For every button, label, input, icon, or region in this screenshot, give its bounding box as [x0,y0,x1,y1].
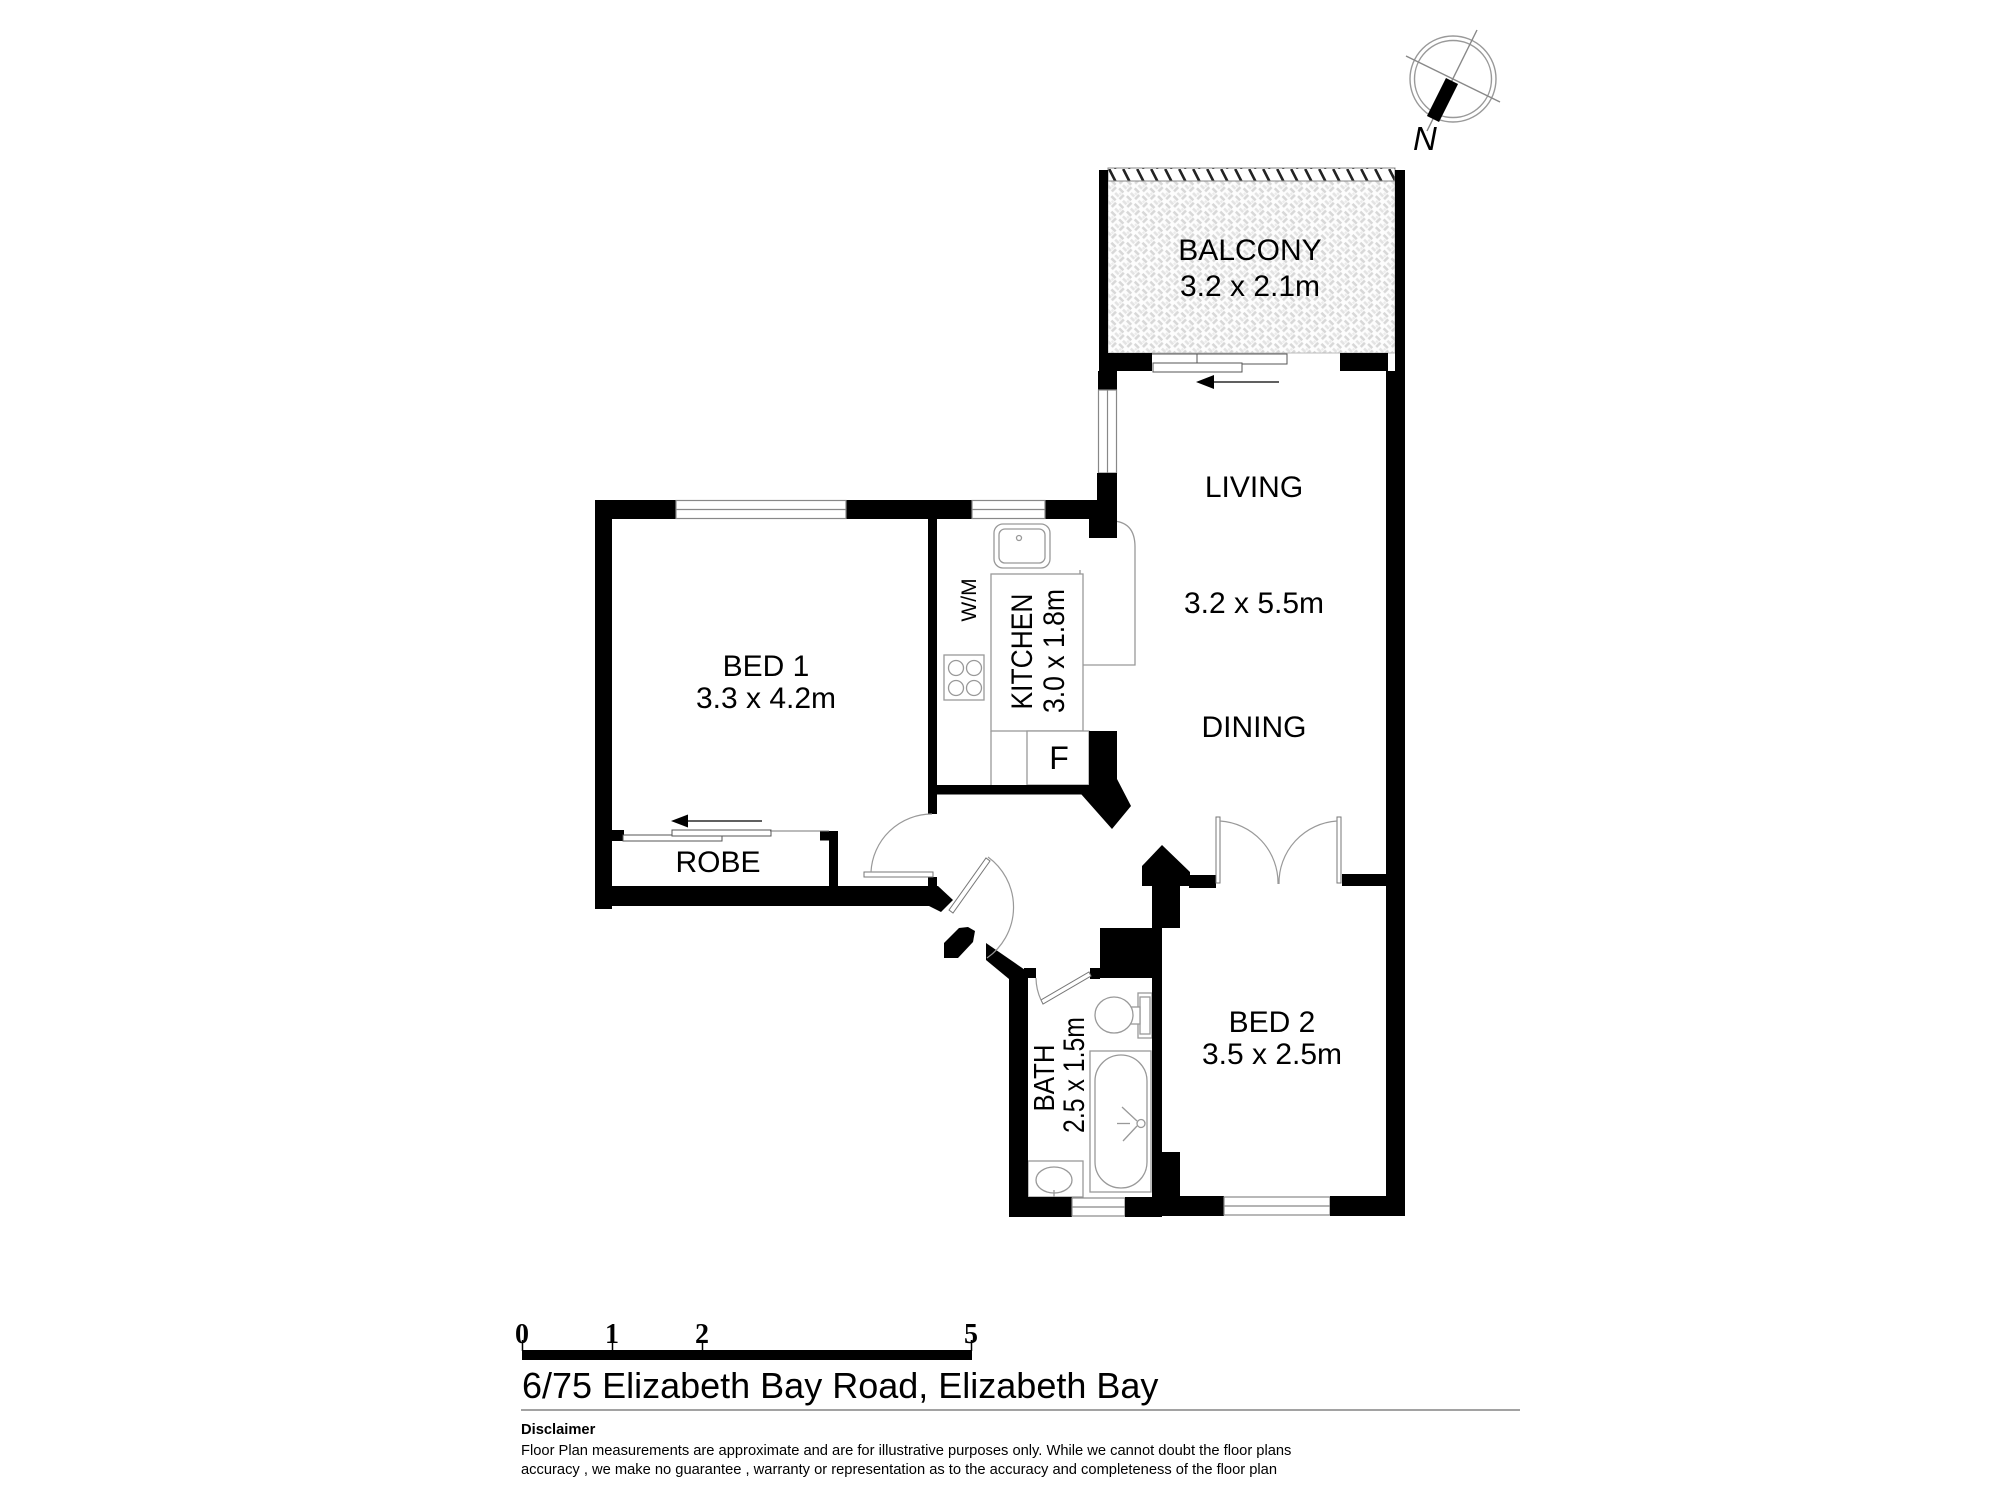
svg-text:W/M: W/M [958,578,981,621]
svg-text:3.0 x 1.8m: 3.0 x 1.8m [1038,589,1071,713]
svg-text:BATH: BATH [1029,1045,1061,1112]
svg-text:3.3 x 4.2m: 3.3 x 4.2m [696,682,836,715]
svg-text:Disclaimer: Disclaimer [521,1422,596,1438]
svg-text:BED 1: BED 1 [723,650,810,683]
svg-text:ROBE: ROBE [675,846,760,879]
svg-text:accuracy , we make no guarante: accuracy , we make no guarantee , warran… [521,1462,1277,1478]
svg-text:DINING: DINING [1202,711,1307,744]
svg-text:KITCHEN: KITCHEN [1006,594,1039,710]
svg-text:N: N [1413,120,1437,157]
svg-text:5: 5 [964,1319,978,1350]
svg-text:0: 0 [515,1319,529,1350]
svg-text:BED 2: BED 2 [1229,1006,1316,1039]
svg-text:Floor Plan measurements are ap: Floor Plan measurements are approximate … [521,1443,1291,1459]
svg-text:2.5 x 1.5m: 2.5 x 1.5m [1058,1017,1091,1133]
svg-text:1: 1 [605,1319,619,1350]
svg-text:6/75 Elizabeth Bay Road, Eliza: 6/75 Elizabeth Bay Road, Elizabeth Bay [522,1365,1158,1406]
svg-text:3.2 x 2.1m: 3.2 x 2.1m [1180,270,1320,303]
svg-text:BALCONY: BALCONY [1178,234,1321,267]
svg-text:3.2 x 5.5m: 3.2 x 5.5m [1184,587,1324,620]
svg-text:F: F [1049,740,1069,776]
svg-text:LIVING: LIVING [1205,471,1303,504]
svg-text:3.5 x 2.5m: 3.5 x 2.5m [1202,1038,1342,1071]
svg-text:2: 2 [695,1319,709,1350]
